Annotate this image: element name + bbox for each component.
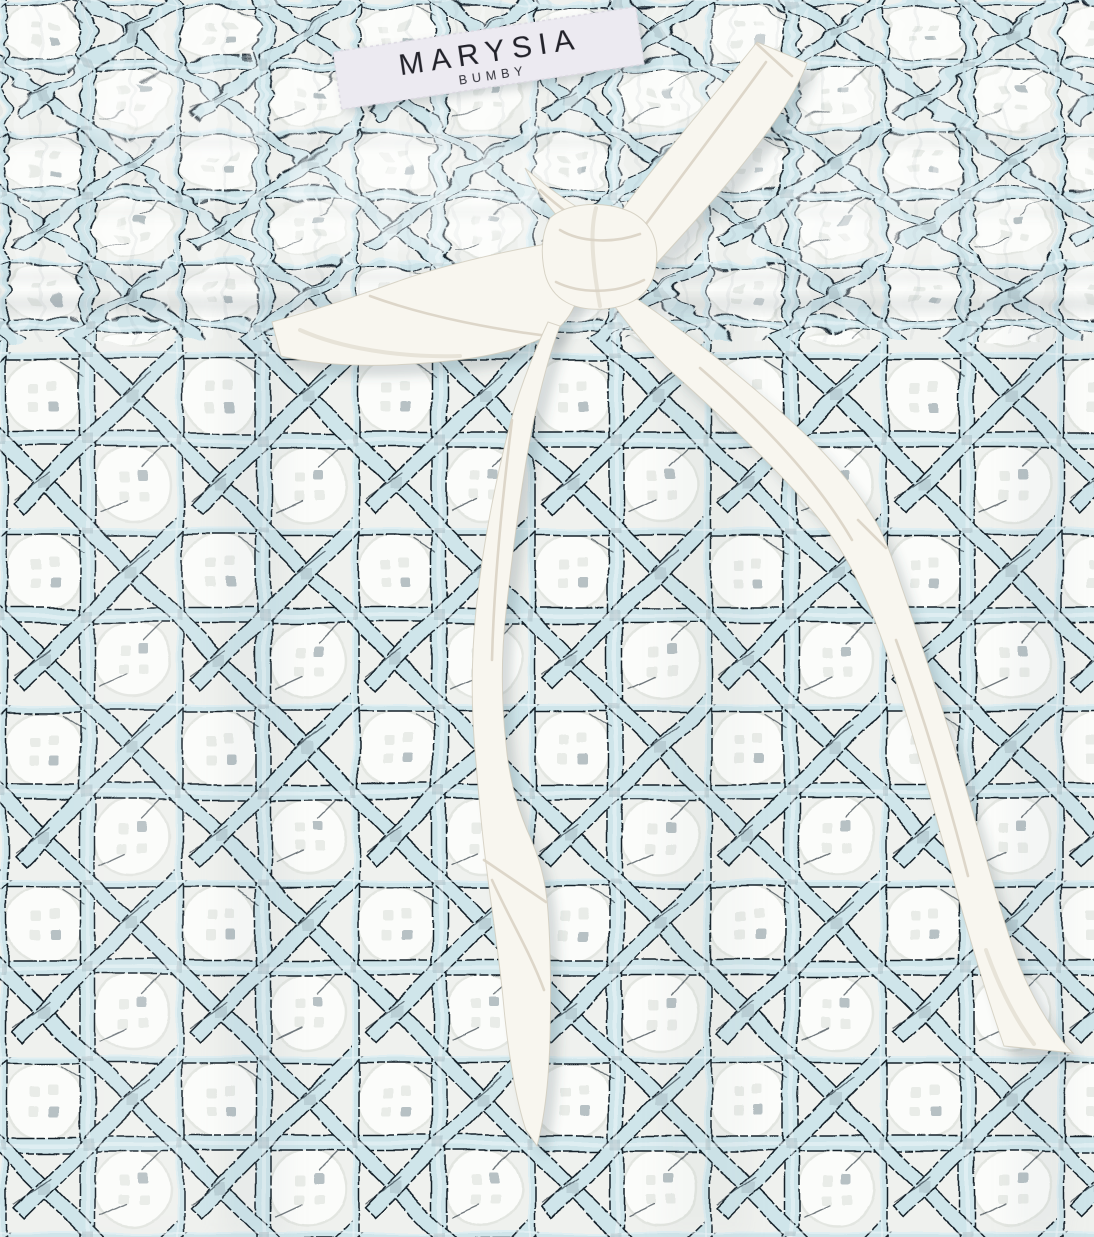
product-photo: MARYSIA BUMBY xyxy=(0,0,1094,1237)
photo-svg: MARYSIA BUMBY xyxy=(0,0,1094,1237)
bow-knot xyxy=(542,204,657,309)
